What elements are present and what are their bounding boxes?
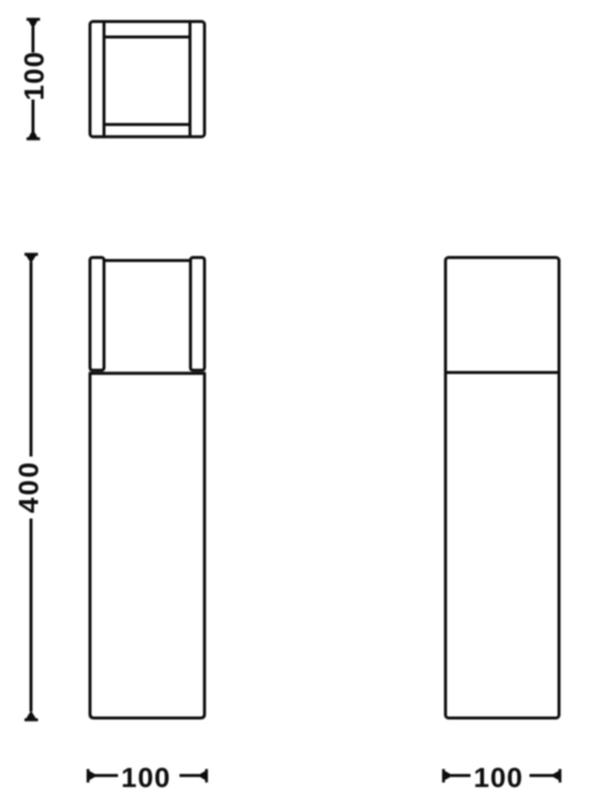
svg-text:100: 100: [19, 51, 50, 101]
svg-text:100: 100: [474, 762, 524, 793]
svg-text:100: 100: [121, 762, 171, 793]
svg-text:400: 400: [13, 460, 44, 513]
